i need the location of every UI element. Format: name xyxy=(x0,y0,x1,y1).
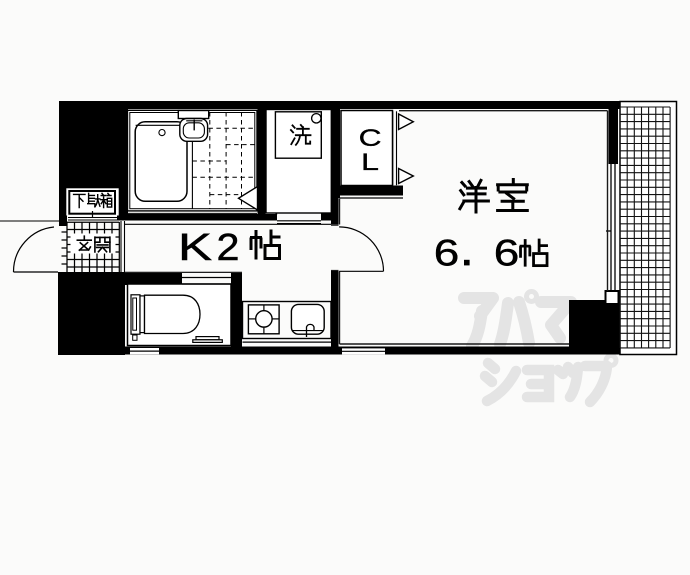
svg-text:6: 6 xyxy=(494,233,520,274)
svg-text:6: 6 xyxy=(434,233,460,274)
svg-text:K: K xyxy=(178,227,212,269)
svg-text:C: C xyxy=(359,125,382,152)
svg-text:2: 2 xyxy=(217,227,240,269)
svg-text:L: L xyxy=(361,149,379,176)
